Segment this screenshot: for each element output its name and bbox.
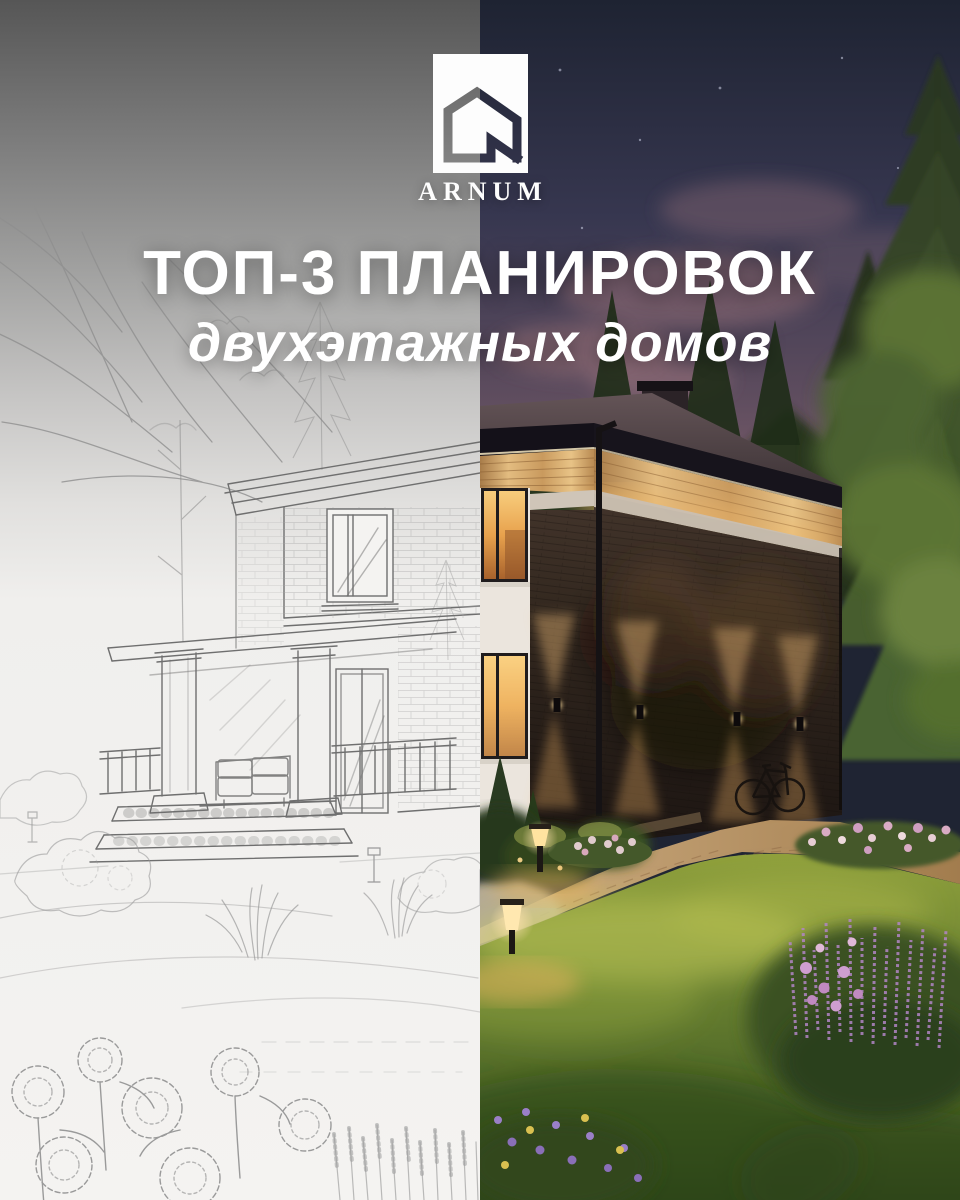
sketch-window <box>322 509 398 611</box>
sketch-column-right <box>286 646 342 817</box>
sketch-door <box>336 669 388 813</box>
sketch-trunk <box>158 420 206 642</box>
photo-artwork <box>480 0 960 1200</box>
sketch-house <box>90 442 480 862</box>
upper-window <box>480 488 530 587</box>
sketch-path-light <box>28 812 37 842</box>
pink-flower-bed <box>795 821 960 869</box>
sketch-flowers <box>12 1038 331 1200</box>
sketch-pine <box>293 302 351 470</box>
downspout <box>596 444 602 816</box>
sketch-garden <box>0 771 480 1200</box>
sketch-sofa <box>216 756 290 808</box>
sketch-half <box>0 0 480 1200</box>
sketch-path-light <box>368 848 380 882</box>
lower-window <box>480 653 530 764</box>
sketch-artwork <box>0 0 480 1200</box>
photo-half <box>480 0 960 1200</box>
sketch-steps <box>90 801 358 862</box>
poster-canvas: ARNUM ТОП-3 ПЛАНИРОВОК двухэтажных домов <box>0 0 960 1200</box>
sketch-lavender <box>334 1125 478 1200</box>
